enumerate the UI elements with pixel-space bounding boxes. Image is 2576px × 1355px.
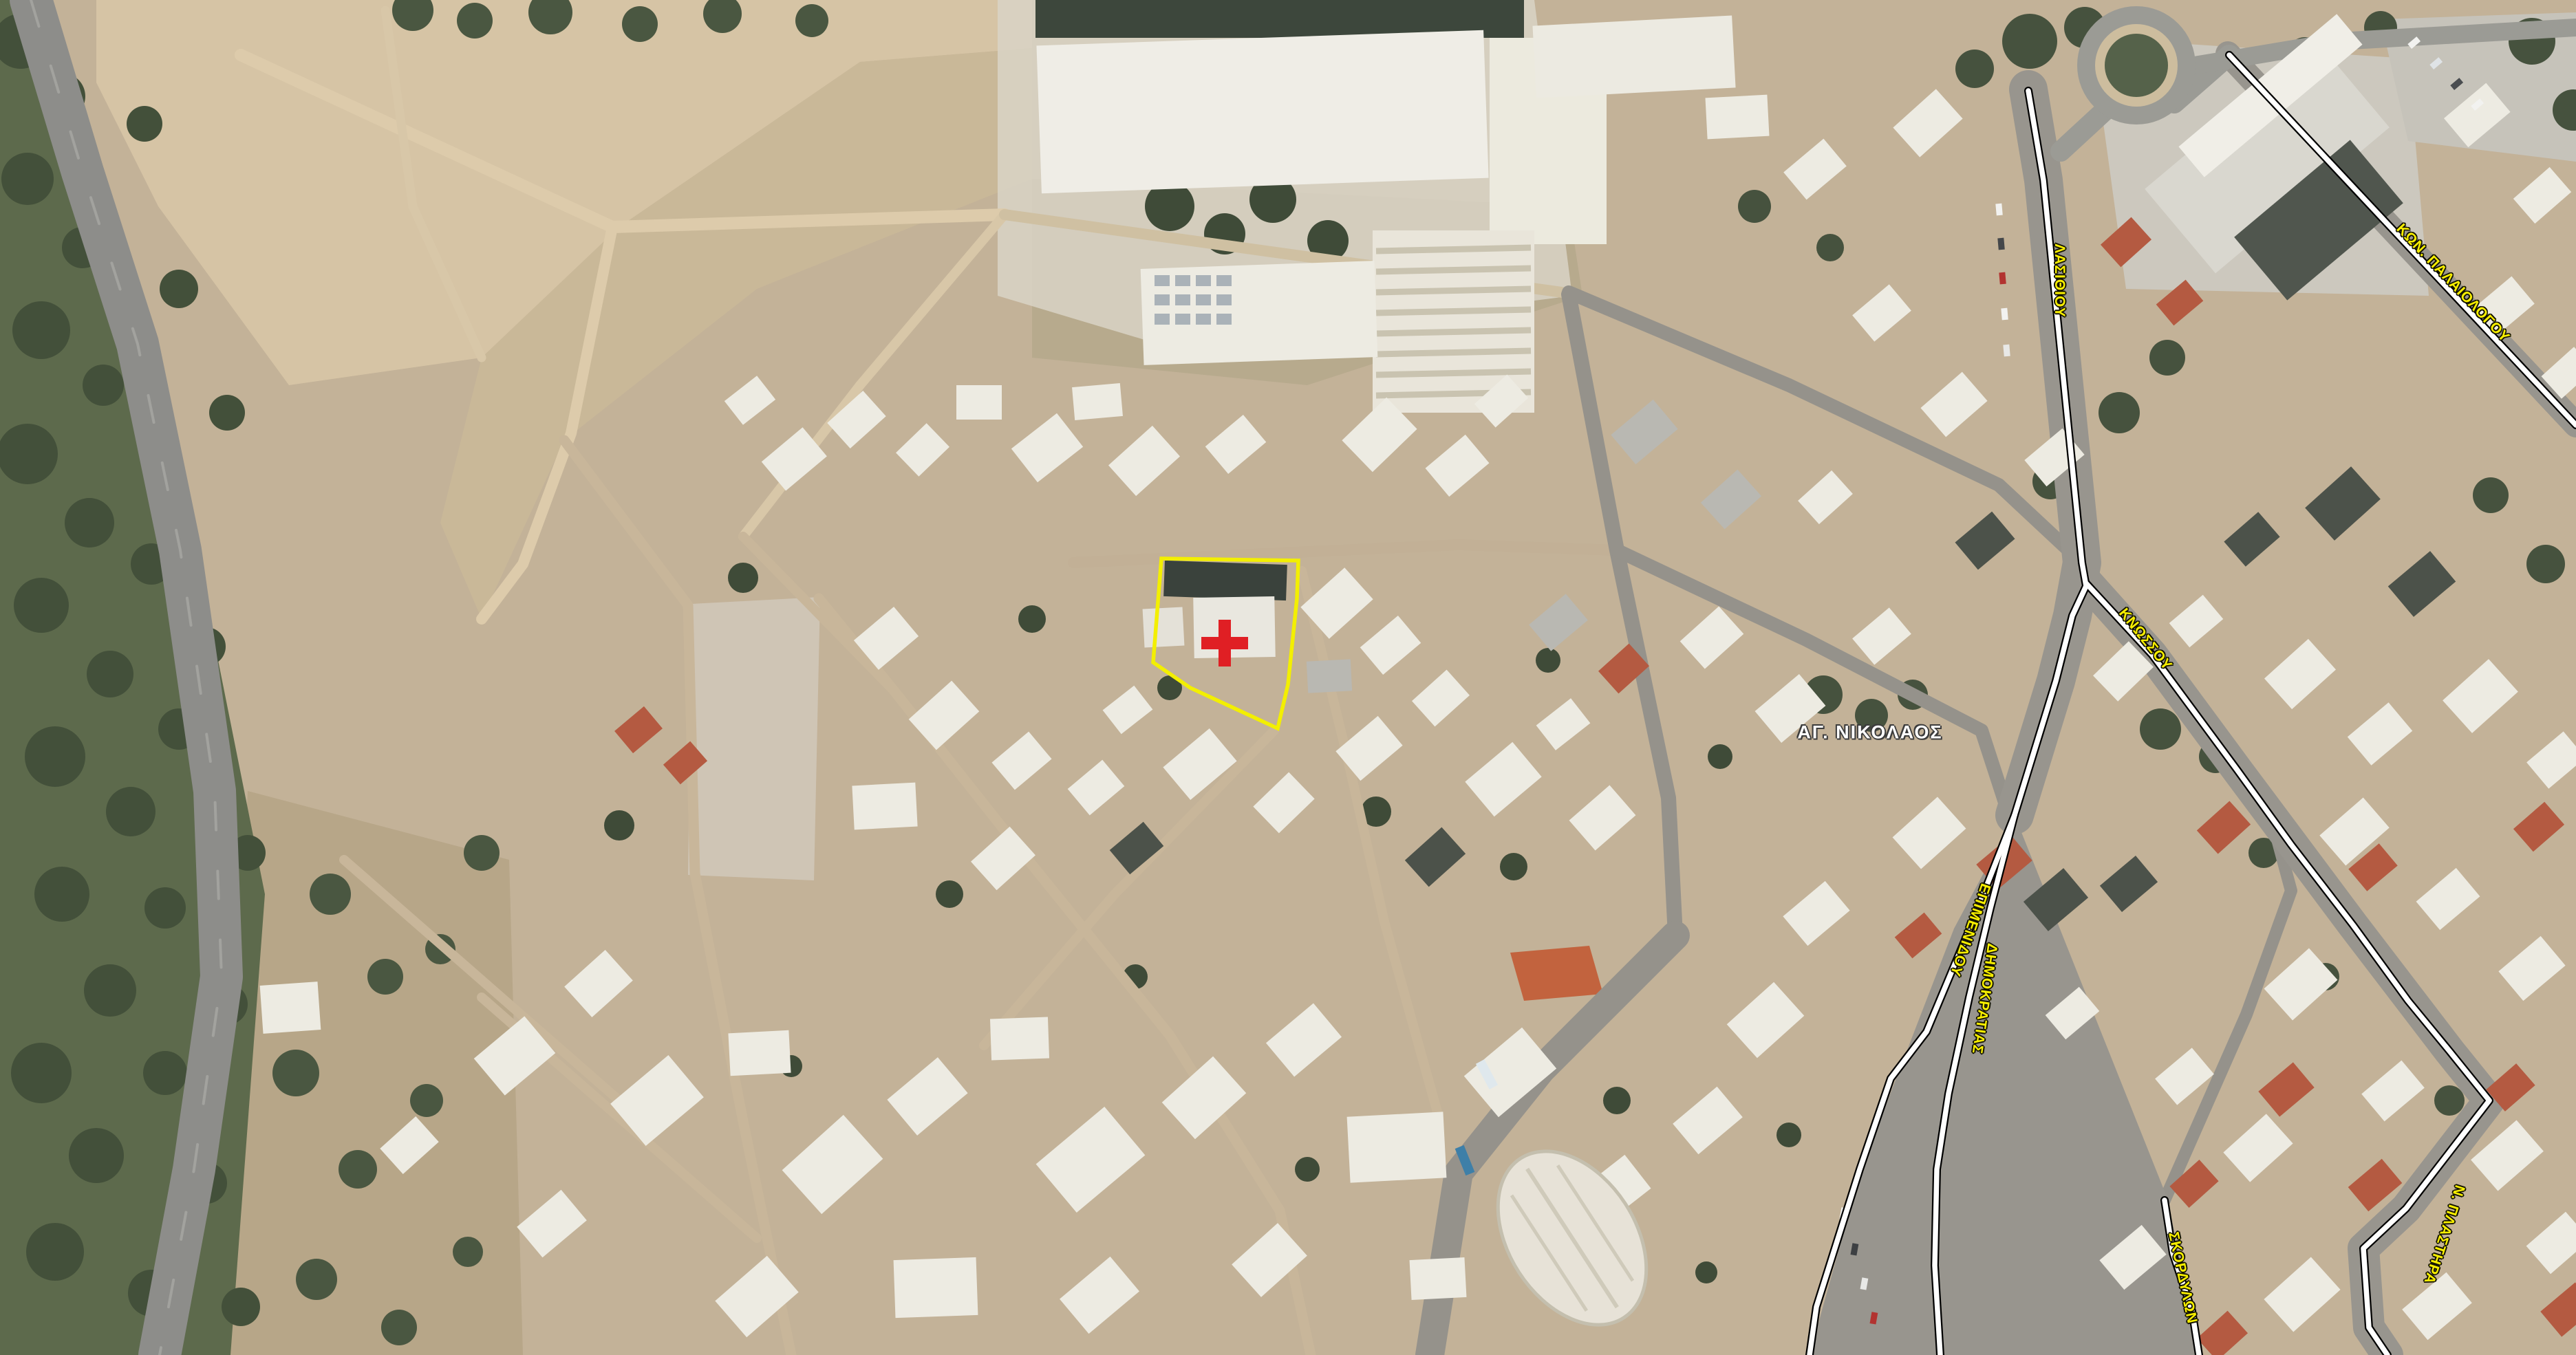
roundabout xyxy=(2077,6,2196,124)
map-canvas[interactable]: ΚΩΝ. ΠΑΛΑΙΟΛΟΓΟΥ ΛΑΣΙΘΙΟΥ ΚΝΩΣΣΟΥ ΕΠΙΜΕΝ… xyxy=(0,0,2576,1355)
satellite-imagery xyxy=(0,0,2576,1355)
